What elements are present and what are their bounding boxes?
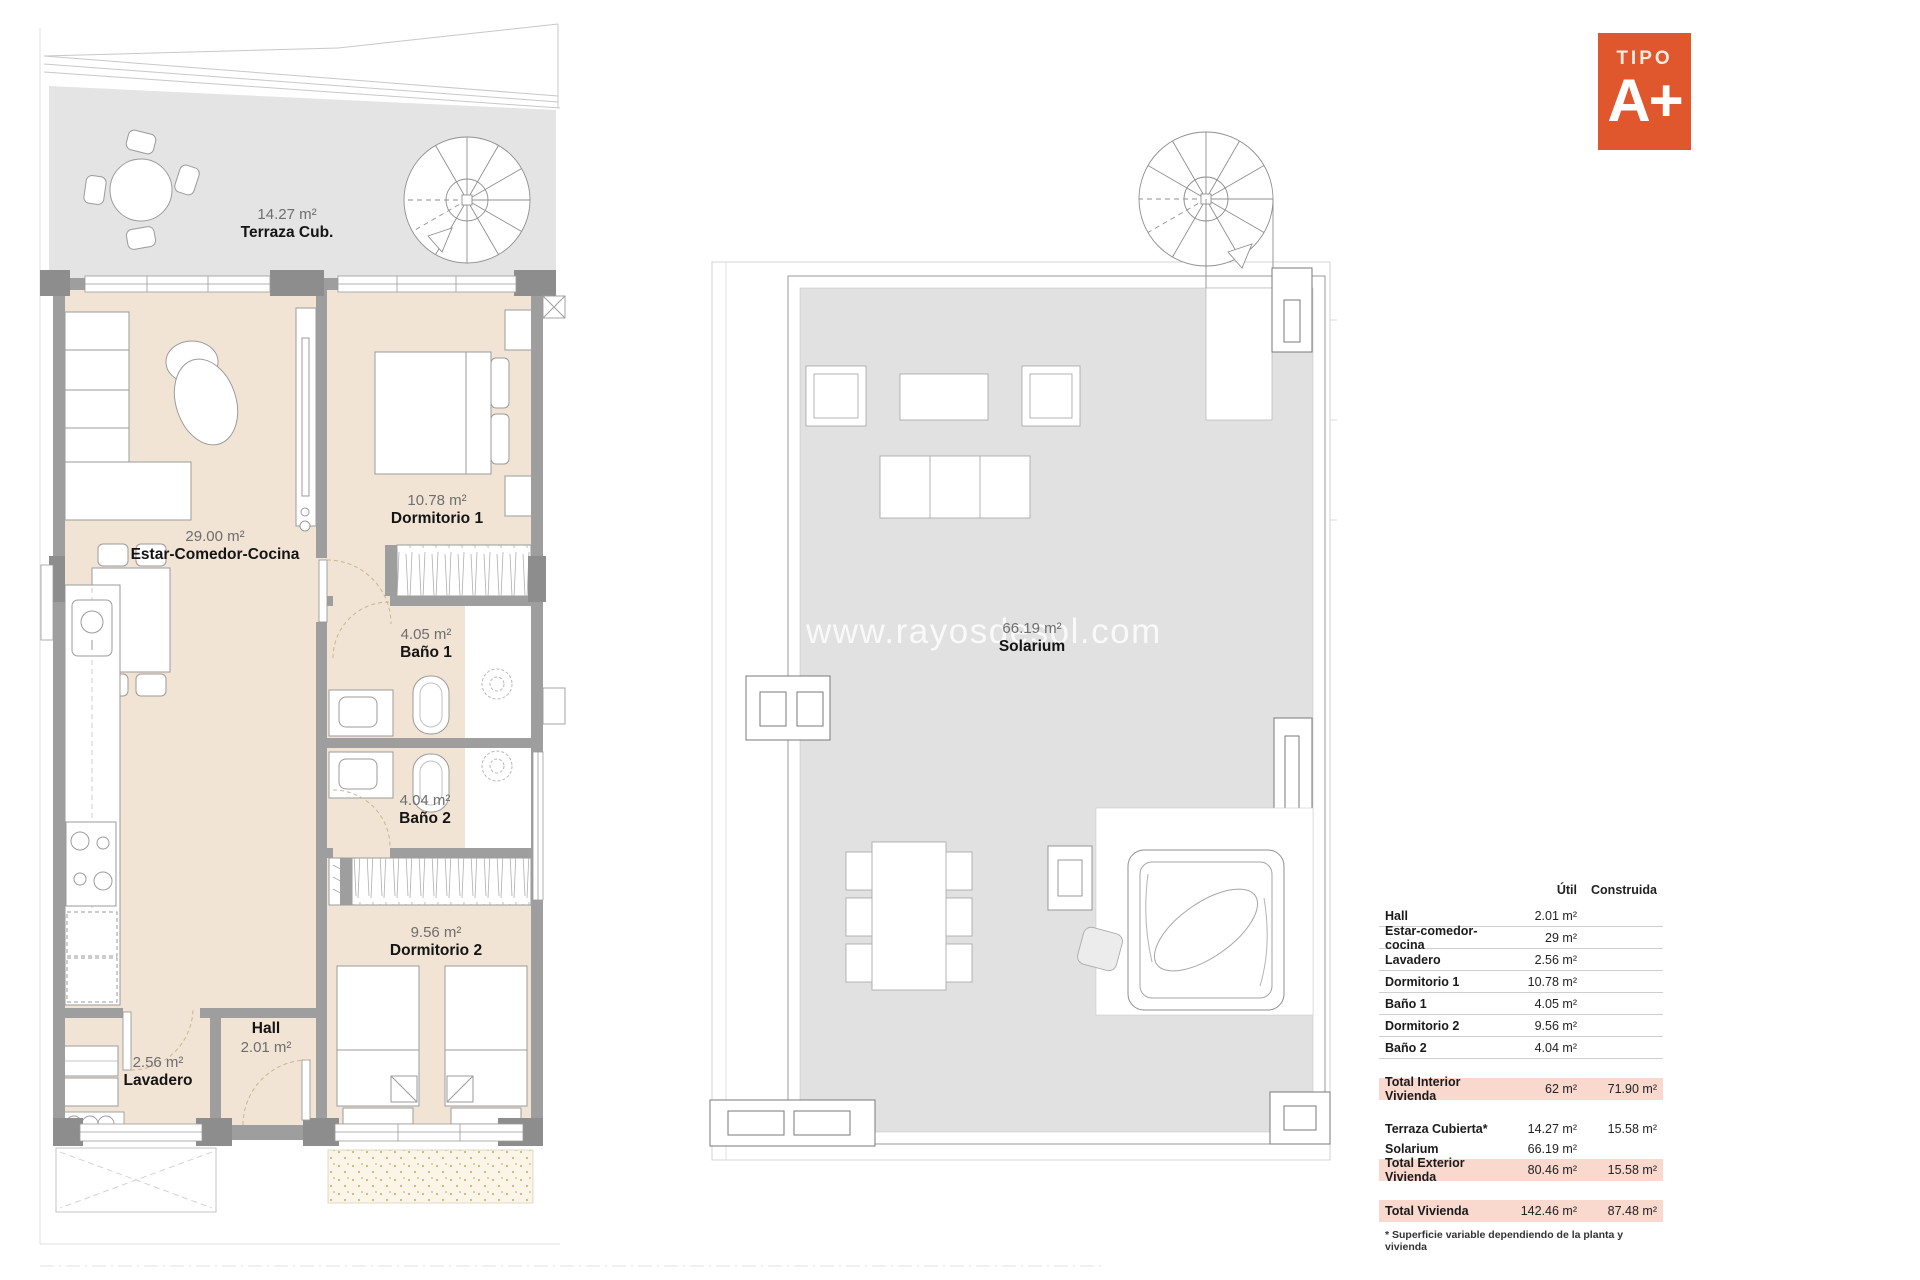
table-row: Dormitorio 1 10.78 m²: [1379, 971, 1663, 993]
vent-box: [543, 296, 565, 724]
table-row: Terraza Cubierta* 14.27 m² 15.58 m²: [1379, 1119, 1663, 1139]
table-footnote: * Superficie variable dependiendo de la …: [1379, 1229, 1663, 1253]
tv-unit: [296, 308, 316, 531]
label-terraza: 14.27 m² Terraza Cub.: [241, 206, 334, 243]
table-row: Lavadero 2.56 m²: [1379, 949, 1663, 971]
label-lavadero: 2.56 m² Lavadero: [124, 1054, 193, 1091]
spiral-staircase: [404, 137, 530, 263]
header-util: Útil: [1505, 883, 1577, 897]
label-dormitorio-1: 10.78 m² Dormitorio 1: [391, 492, 483, 529]
label-hall: Hall 2.01 m²: [241, 1020, 292, 1057]
jacuzzi: [1128, 850, 1284, 1010]
kitchen-counter: [65, 585, 120, 1005]
label-dormitorio-2: 9.56 m² Dormitorio 2: [390, 924, 482, 961]
type-badge-label: A+: [1607, 71, 1681, 131]
header-construida: Construida: [1577, 883, 1657, 897]
area-table: Útil Construida Hall 2.01 m² Estar-comed…: [1379, 878, 1663, 1253]
label-estar: 29.00 m² Estar-Comedor-Cocina: [131, 528, 300, 565]
stove: [66, 822, 116, 906]
table-row: Baño 2 4.04 m²: [1379, 1037, 1663, 1059]
label-solarium: 66.19 m² Solarium: [999, 620, 1065, 657]
entrance-terrace: [56, 1148, 216, 1212]
area-table-header: Útil Construida: [1379, 878, 1663, 902]
wardrobe-1: [397, 545, 531, 596]
type-badge: TIPO A+: [1598, 33, 1691, 150]
total-vivienda-row: Total Vivienda 142.46 m² 87.48 m²: [1379, 1200, 1663, 1222]
spiral-staircase-roof: [1139, 132, 1273, 288]
total-exterior-row: Total Exterior Vivienda 80.46 m² 15.58 m…: [1379, 1159, 1663, 1181]
table-row: Estar-comedor-cocina 29 m²: [1379, 927, 1663, 949]
side-table: [1048, 846, 1092, 910]
washer: [64, 1046, 118, 1106]
label-bano-2: 4.04 m² Baño 2: [399, 792, 451, 829]
wardrobe-2: [329, 858, 531, 905]
watermark: www.rayosdesol.com: [806, 612, 1162, 652]
gravel-area: [328, 1150, 533, 1203]
solarium-dining-set: [846, 842, 972, 990]
label-bano-1: 4.05 m² Baño 1: [400, 626, 452, 663]
floor-plan-sheet: www.rayosdesol.com 14.27 m² Terraza Cub.…: [0, 0, 1920, 1280]
total-interior-row: Total Interior Vivienda 62 m² 71.90 m²: [1379, 1078, 1663, 1100]
table-row: Baño 1 4.05 m²: [1379, 993, 1663, 1015]
sun-lounger: [880, 456, 1030, 518]
table-row: Dormitorio 2 9.56 m²: [1379, 1015, 1663, 1037]
